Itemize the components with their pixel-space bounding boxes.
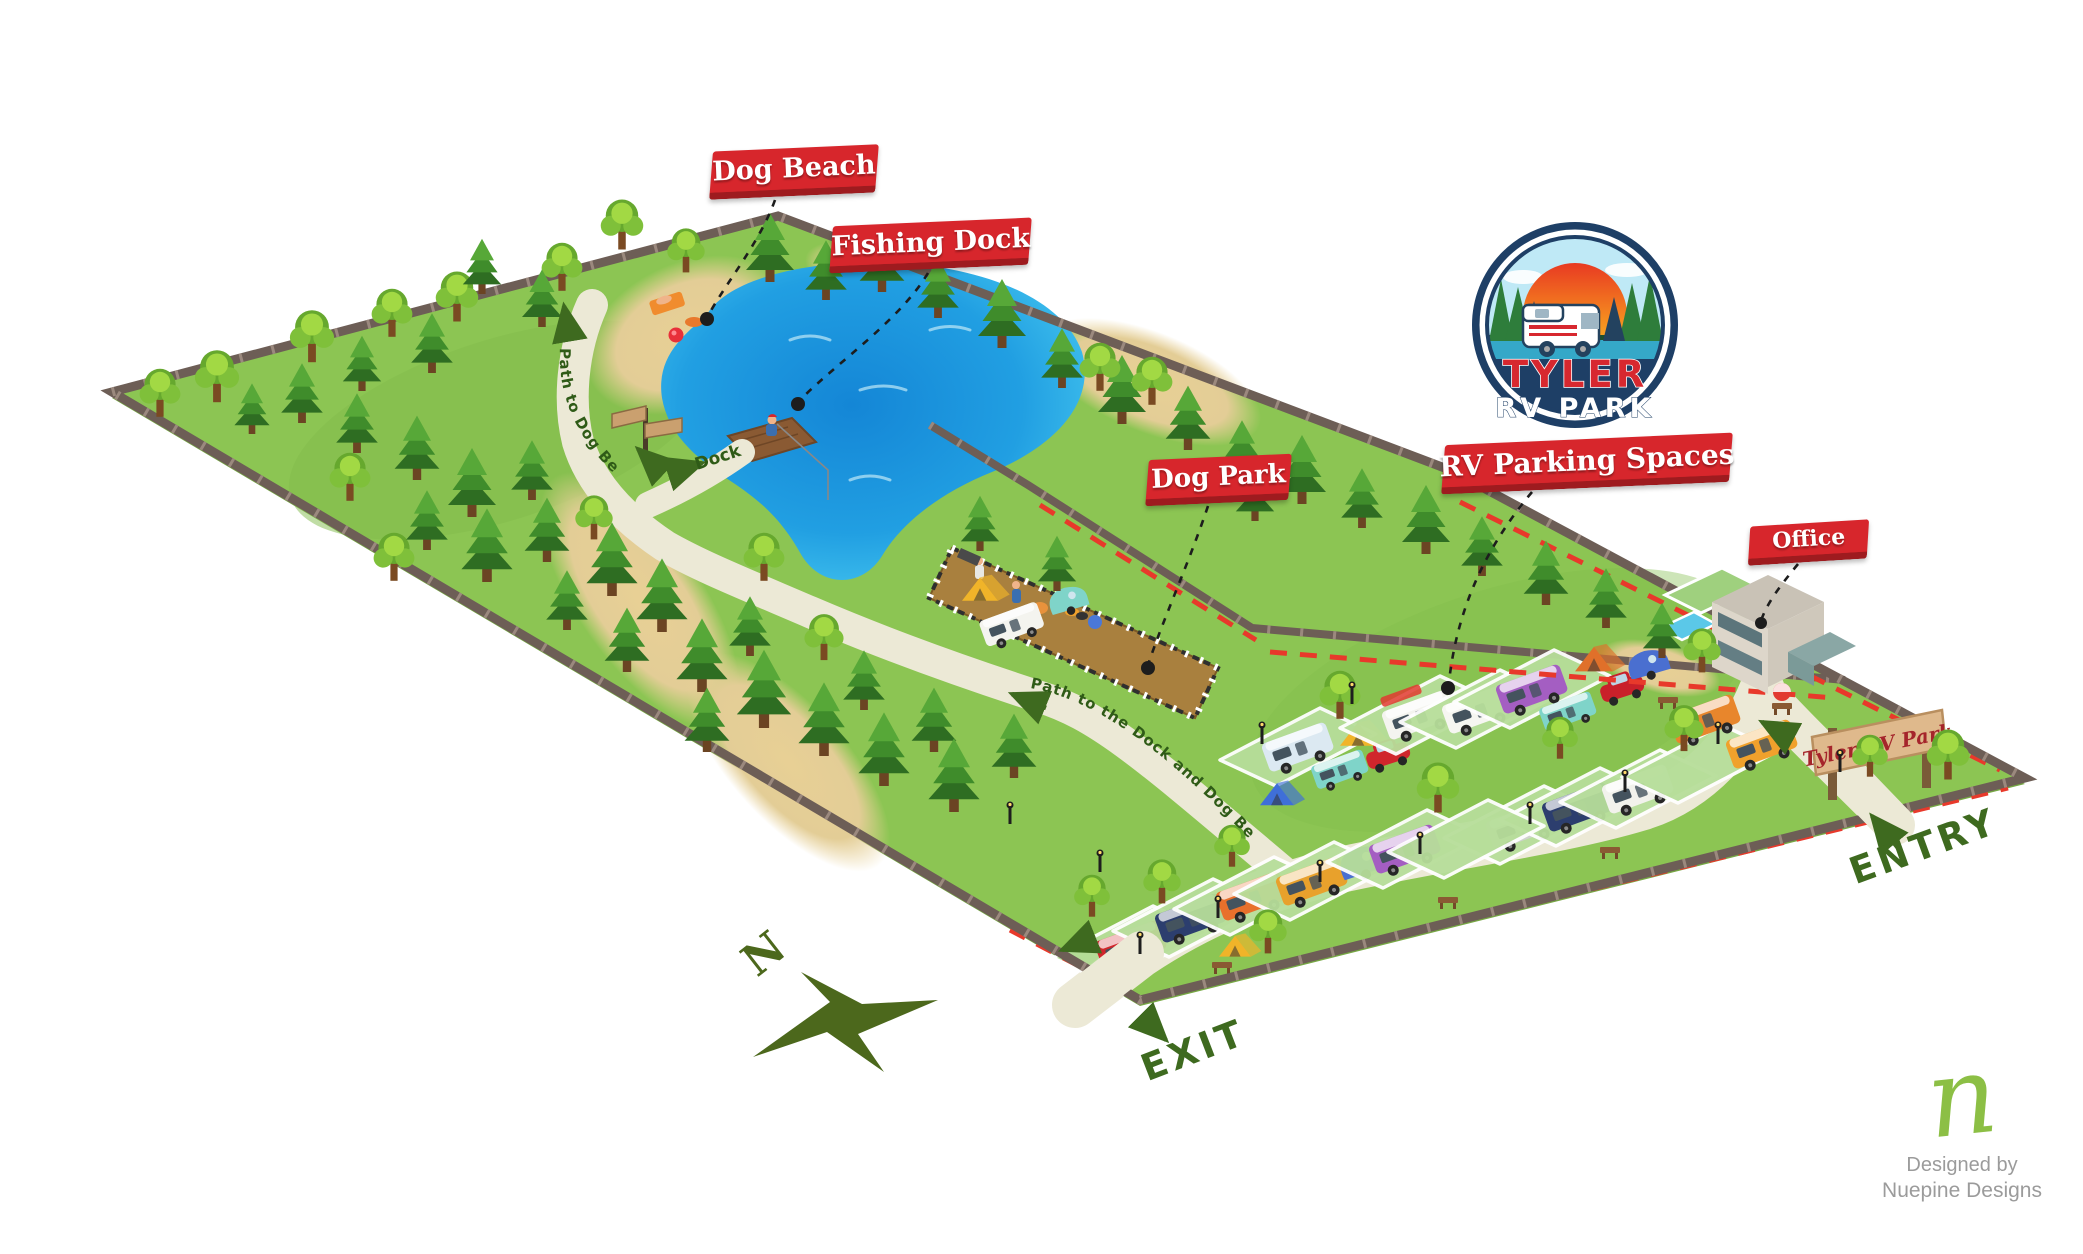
- designer-credit: n Designed by Nuepine Designs: [1877, 1048, 2047, 1203]
- tyler-rv-park-map: Tyler RV Park: [0, 0, 2083, 1254]
- label-dog-beach: Dog Beach: [709, 144, 879, 199]
- designer-monogram: n: [1872, 1039, 2052, 1156]
- park-illustration: Tyler RV Park: [0, 0, 2083, 1254]
- label-fishing-dock-text: Fishing Dock: [831, 222, 1031, 262]
- label-dog-park: Dog Park: [1145, 454, 1292, 506]
- logo-subtitle: RV PARK: [1495, 393, 1654, 424]
- label-rv-parking-text: RV Parking Spaces: [1439, 437, 1735, 483]
- label-office-text: Office: [1771, 524, 1845, 554]
- compass-north-label: N: [732, 922, 795, 987]
- exit-label: EXIT: [1135, 1011, 1252, 1090]
- label-office: Office: [1748, 519, 1869, 565]
- compass: N: [732, 922, 938, 1072]
- label-dog-park-text: Dog Park: [1151, 459, 1287, 495]
- logo-title: TYLER: [1503, 353, 1647, 396]
- credit-line-2: Nuepine Designs: [1877, 1179, 2047, 1203]
- label-dog-beach-text: Dog Beach: [712, 149, 876, 187]
- label-fishing-dock: Fishing Dock: [829, 218, 1032, 274]
- park-logo: TYLER RV PARK: [1476, 226, 1674, 424]
